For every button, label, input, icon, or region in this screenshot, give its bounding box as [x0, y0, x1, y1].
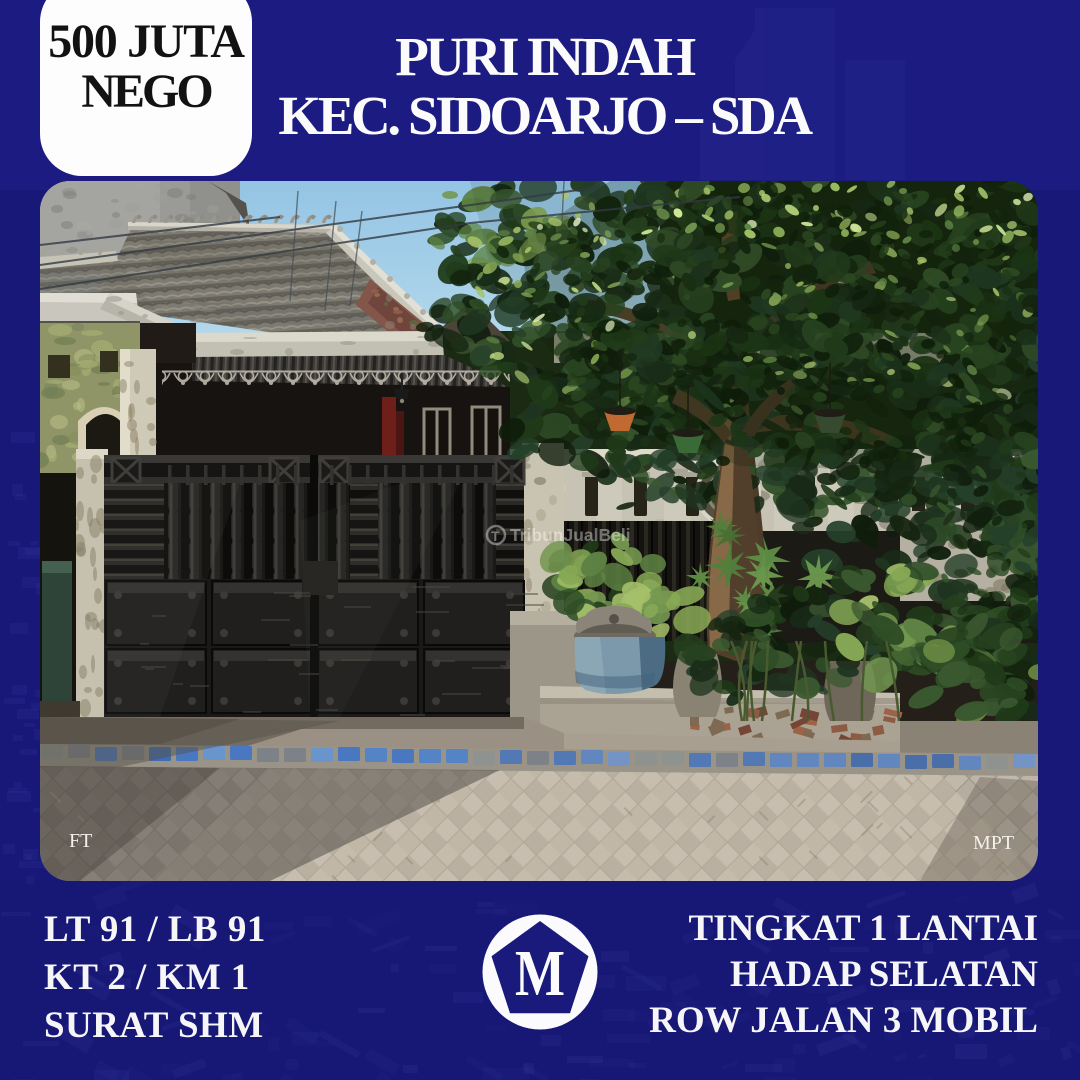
- svg-text:TribunJualBeli: TribunJualBeli: [510, 525, 631, 545]
- svg-text:MPT: MPT: [973, 832, 1014, 854]
- svg-text:T: T: [491, 528, 500, 544]
- svg-text:FT: FT: [69, 830, 92, 852]
- svg-text:M: M: [515, 937, 565, 1010]
